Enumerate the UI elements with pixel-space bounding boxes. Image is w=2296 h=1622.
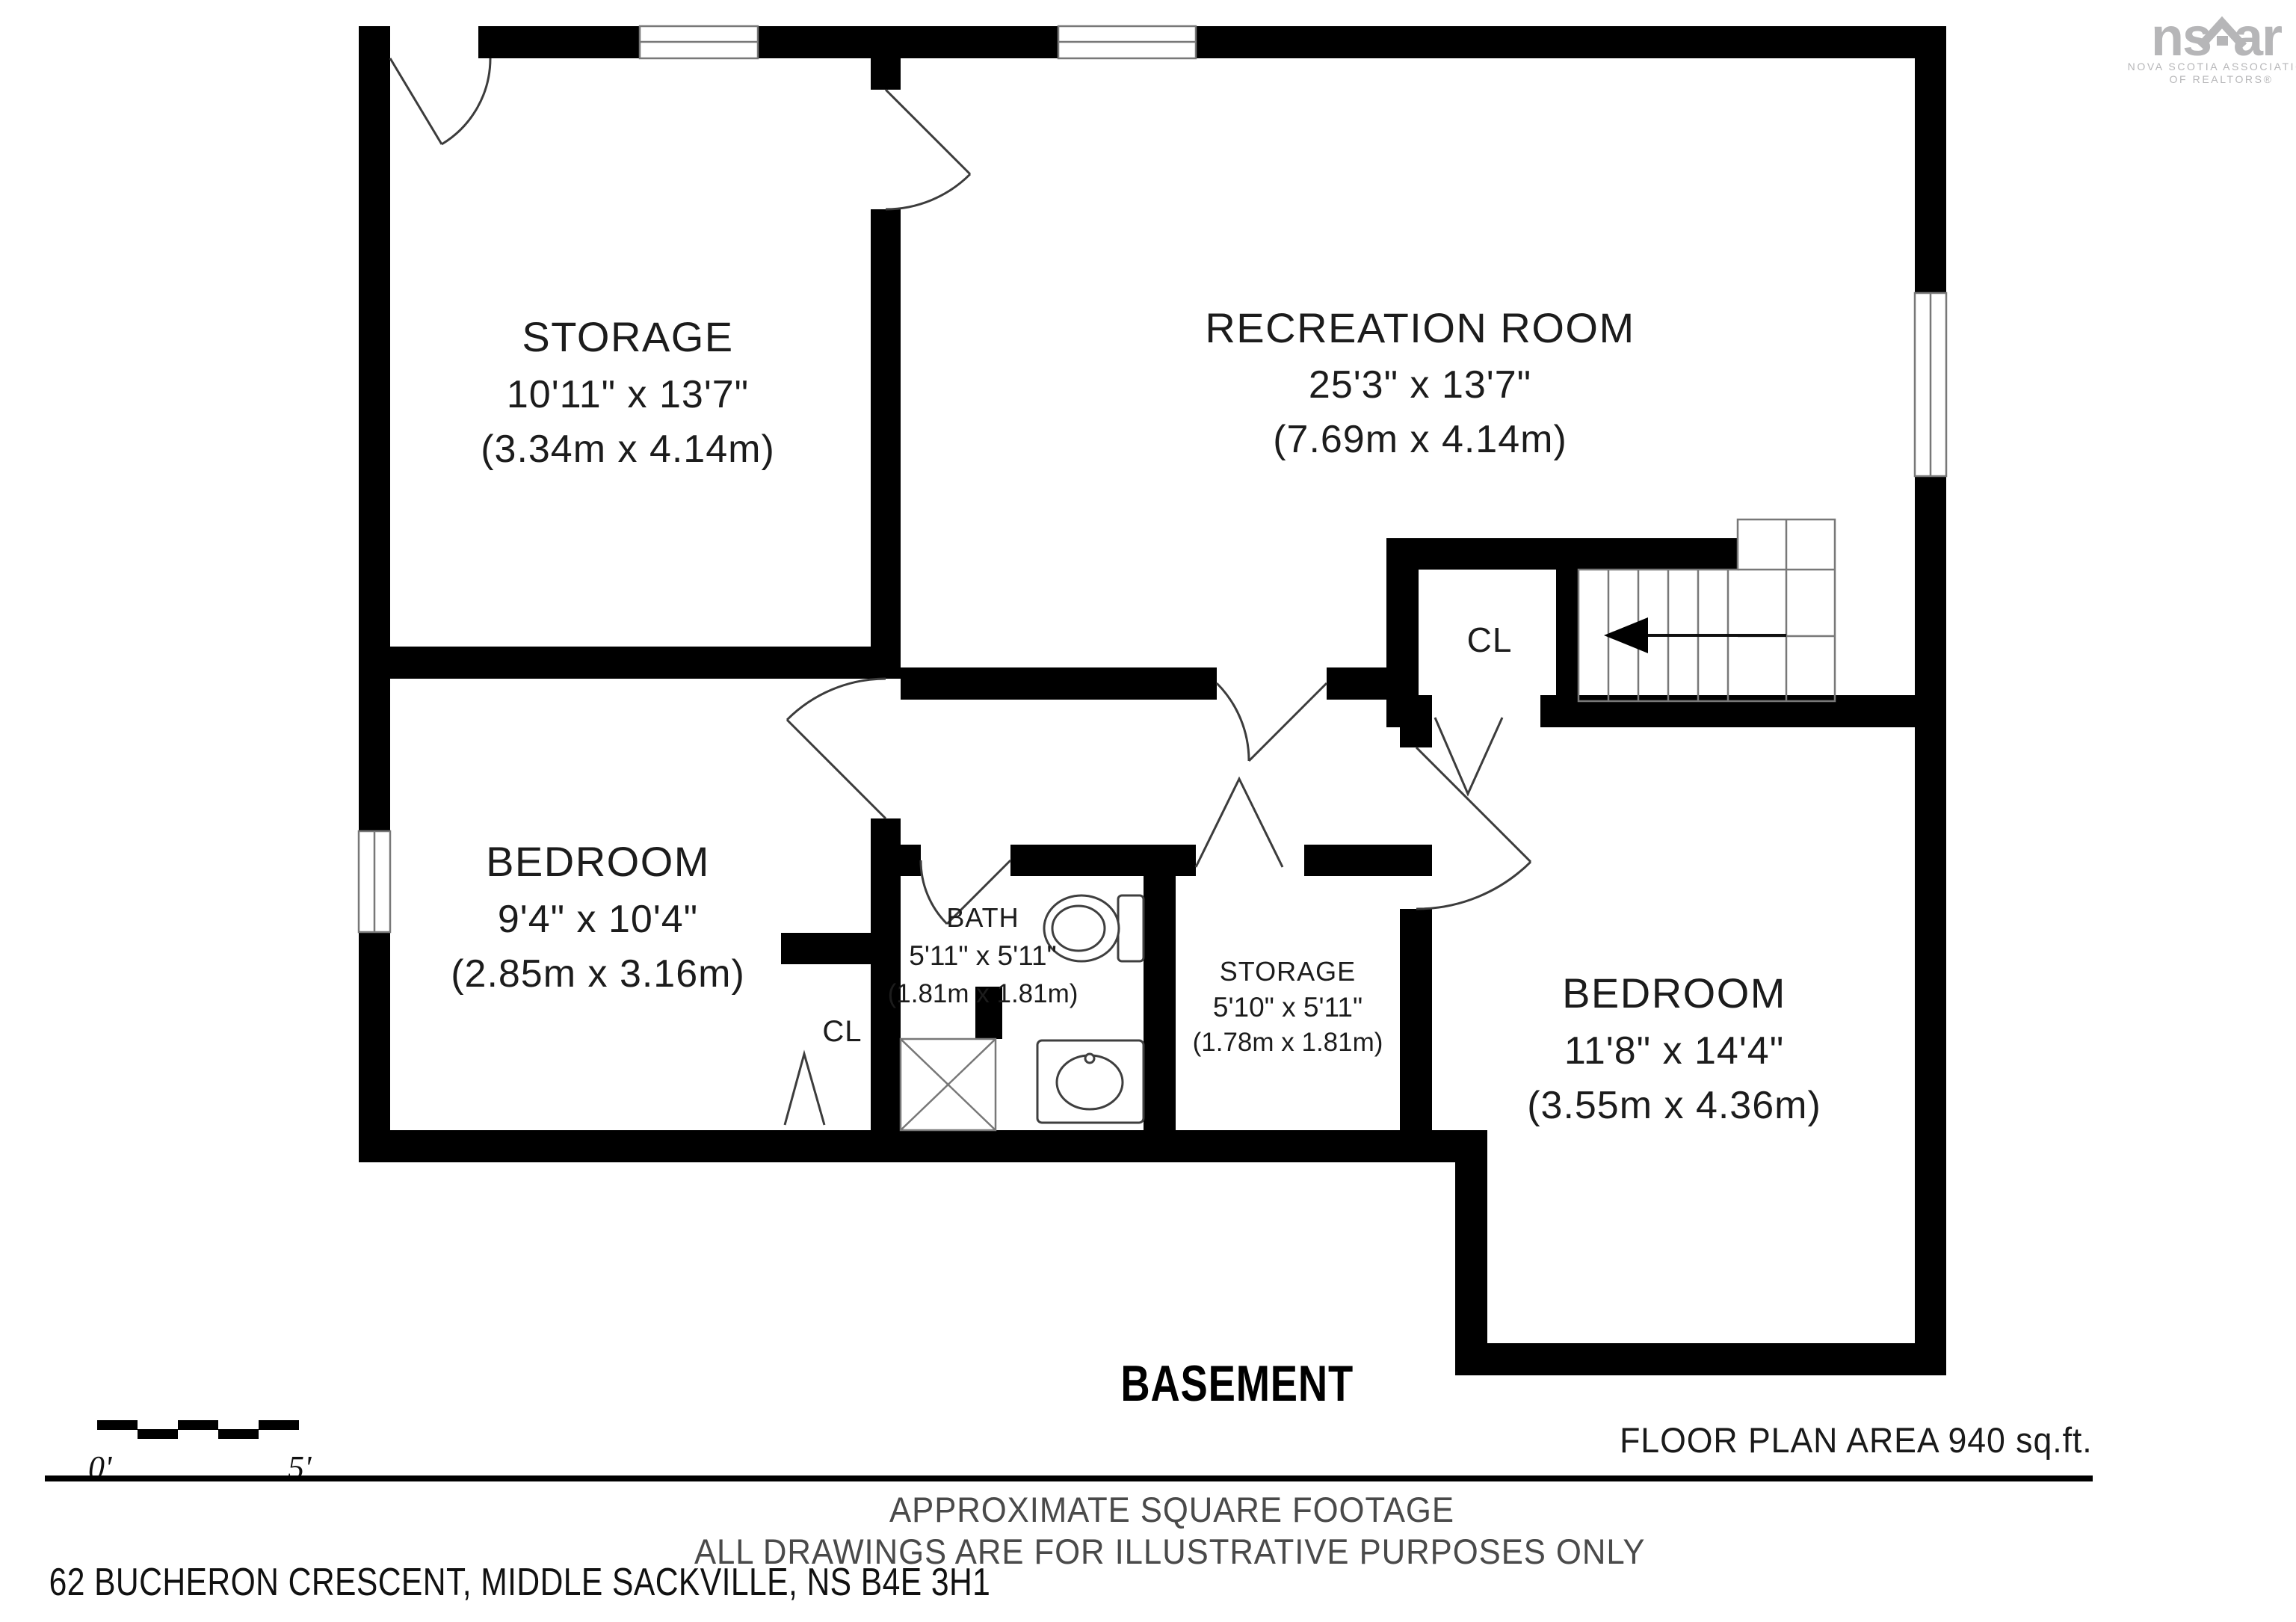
room-metric-dim: (3.34m x 4.14m) (481, 428, 775, 471)
footer-divider (45, 1475, 2093, 1481)
floor-plan-area-label: FLOOR PLAN AREA 940 sq.ft. (1620, 1421, 2093, 1460)
floor-plan-page: STORAGE 10'11" x 13'7" (3.34m x 4.14m) R… (0, 0, 2296, 1622)
room-imperial-dim: 9'4" x 10'4" (498, 898, 698, 941)
room-bedroom-left: BEDROOM 9'4" x 10'4" (2.85m x 3.16m) (451, 838, 745, 996)
area-note-group: FLOOR PLAN AREA 940 sq.ft. (1620, 1421, 2093, 1460)
door-storage-recreation (886, 90, 970, 209)
window-left (359, 831, 390, 932)
shower-icon (901, 1039, 996, 1130)
room-imperial-dim: 11'8" x 14'4" (1564, 1029, 1784, 1073)
sink-vanity-icon (1037, 1040, 1144, 1123)
toilet-icon (1044, 895, 1144, 961)
room-imperial-dim: 5'11" x 5'11" (909, 940, 1056, 971)
door-closet-hall (1435, 718, 1502, 794)
window-top-right (1058, 26, 1196, 58)
room-imperial-dim: 10'11" x 13'7" (507, 373, 749, 416)
closet-bedroom-label: CL (822, 1015, 862, 1048)
windows (359, 26, 1946, 932)
room-metric-dim: (1.81m x 1.81m) (888, 979, 1078, 1008)
door-bedroom-right (1416, 747, 1531, 909)
room-label: STORAGE (522, 313, 733, 360)
door-recreation-hall (1217, 683, 1327, 761)
approx-footage-note: APPROXIMATE SQUARE FOOTAGE (889, 1490, 1454, 1530)
room-label: BEDROOM (1562, 969, 1786, 1017)
room-label: RECREATION ROOM (1205, 304, 1635, 351)
address-group: 62 BUCHERON CRESCENT, MIDDLE SACKVILLE, … (49, 1561, 991, 1604)
room-imperial-dim: 25'3" x 13'7" (1309, 363, 1531, 407)
room-metric-dim: (7.69m x 4.14m) (1273, 418, 1567, 461)
room-bedroom-right: BEDROOM 11'8" x 14'4" (3.55m x 4.36m) (1527, 969, 1821, 1127)
floor-plan-drawing: STORAGE 10'11" x 13'7" (3.34m x 4.14m) R… (0, 0, 2296, 1622)
door-storage-small (1196, 779, 1283, 867)
room-metric-dim: (2.85m x 3.16m) (451, 952, 745, 996)
logo-mark-left: ns (2151, 7, 2211, 67)
stairs-direction-arrow-icon (1604, 617, 1786, 653)
nsar-logo: ns ar NOVA SCOTIA ASSOCIATION OF REALTOR… (2128, 7, 2296, 85)
door-storage-exterior (390, 58, 490, 144)
room-imperial-dim: 5'10" x 5'11" (1213, 992, 1363, 1023)
room-label: BEDROOM (486, 838, 710, 885)
logo-subline-2: OF REALTORS® (2169, 73, 2273, 85)
room-storage-large: STORAGE 10'11" x 13'7" (3.34m x 4.14m) (481, 313, 775, 471)
property-address: 62 BUCHERON CRESCENT, MIDDLE SACKVILLE, … (49, 1561, 991, 1604)
floor-title: BASEMENT (1120, 1355, 1354, 1412)
window-right (1915, 293, 1946, 476)
room-label: BATH (946, 902, 1019, 933)
room-storage-small: STORAGE 5'10" x 5'11" (1.78m x 1.81m) (1193, 956, 1383, 1057)
room-metric-dim: (1.78m x 1.81m) (1193, 1028, 1383, 1057)
window-top-left (640, 26, 758, 58)
room-recreation: RECREATION ROOM 25'3" x 13'7" (7.69m x 4… (1205, 304, 1635, 461)
door-bedroom-left (787, 679, 886, 818)
room-metric-dim: (3.55m x 4.36m) (1527, 1084, 1821, 1127)
door-closet-bedroom (785, 1054, 824, 1125)
bath-fixtures (901, 895, 1144, 1130)
disclaimer-notes: APPROXIMATE SQUARE FOOTAGE ALL DRAWINGS … (694, 1490, 1645, 1572)
room-label: STORAGE (1220, 956, 1356, 987)
floor-title-group: BASEMENT (1120, 1355, 1354, 1412)
logo-subline-1: NOVA SCOTIA ASSOCIATION (2128, 61, 2296, 73)
closet-hall-label: CL (1467, 620, 1513, 659)
